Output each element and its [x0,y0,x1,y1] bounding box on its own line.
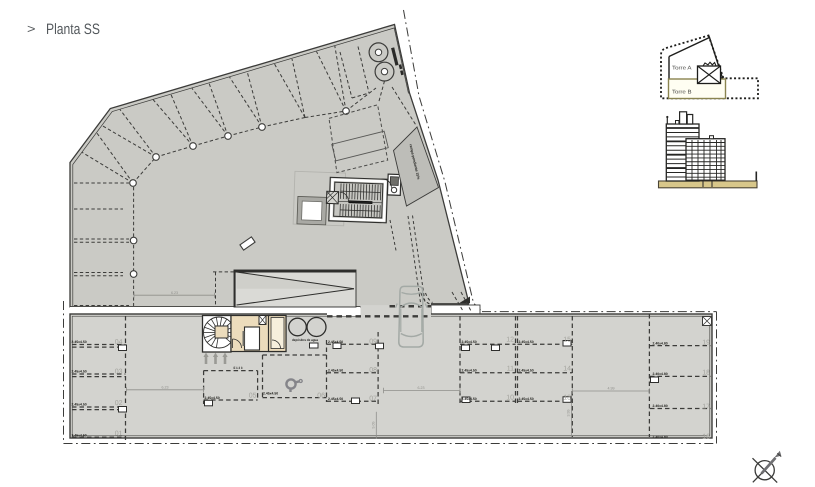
svg-text:2.45x4.50: 2.45x4.50 [72,403,87,407]
svg-text:2.45x4.50: 2.45x4.50 [519,368,534,372]
svg-text:2.45x4.50: 2.45x4.50 [462,368,477,372]
svg-text:Torre A: Torre A [672,66,692,72]
svg-text:2.45x4.50: 2.45x4.50 [328,368,343,372]
svg-text:12: 12 [506,337,514,344]
svg-text:depósitos de agua: depósitos de agua [292,338,318,342]
svg-text:5.05: 5.05 [372,422,376,429]
svg-text:2.45x4.50: 2.45x4.50 [519,397,534,401]
svg-text:4.99: 4.99 [608,387,615,391]
svg-text:Torre B: Torre B [672,90,692,96]
svg-text:16: 16 [702,434,710,441]
svg-text:09: 09 [369,339,377,346]
svg-text:2.40x4.80: 2.40x4.80 [653,435,668,439]
svg-text:17: 17 [702,404,710,411]
svg-text:2.45x4.50: 2.45x4.50 [72,370,87,374]
svg-text:2.45x4.50: 2.45x4.50 [205,396,220,400]
svg-text:6.23: 6.23 [162,385,169,389]
svg-text:E 1 2 3: E 1 2 3 [234,366,243,370]
svg-text:19: 19 [702,340,710,347]
svg-text:2.45x4.50: 2.45x4.50 [263,392,278,396]
svg-text:05: 05 [249,393,257,400]
svg-text:01: 01 [115,431,123,438]
svg-text:2.40x4.80: 2.40x4.80 [653,372,668,376]
svg-text:2.40x4.80: 2.40x4.80 [653,341,668,345]
svg-text:2.45x4.50: 2.45x4.50 [328,397,343,401]
svg-text:2.45x4.50: 2.45x4.50 [328,340,343,344]
svg-text:14: 14 [563,366,571,373]
svg-text:6.23: 6.23 [418,386,425,390]
svg-text:15: 15 [563,337,571,344]
svg-text:Planta SS: Planta SS [46,21,100,38]
svg-text:>: > [27,22,36,36]
svg-text:08: 08 [369,367,377,374]
svg-text:10: 10 [506,395,514,402]
svg-text:13: 13 [563,395,571,402]
svg-text:2.45x4.50: 2.45x4.50 [462,397,477,401]
svg-text:2.45x4.50: 2.45x4.50 [72,340,87,344]
svg-text:18: 18 [702,370,710,377]
svg-text:03: 03 [115,369,123,376]
svg-text:04: 04 [115,339,123,346]
svg-text:2.45x4.50: 2.45x4.50 [72,434,87,438]
svg-text:6.23: 6.23 [171,291,178,295]
svg-text:3.55: 3.55 [567,410,571,417]
svg-text:2.45x4.50: 2.45x4.50 [462,340,477,344]
svg-text:02: 02 [115,400,123,407]
svg-text:06: 06 [317,393,325,400]
svg-text:2.40x4.80: 2.40x4.80 [653,404,668,408]
svg-text:07: 07 [369,396,377,403]
svg-text:2.45x4.50: 2.45x4.50 [519,340,534,344]
svg-text:11: 11 [507,366,514,373]
